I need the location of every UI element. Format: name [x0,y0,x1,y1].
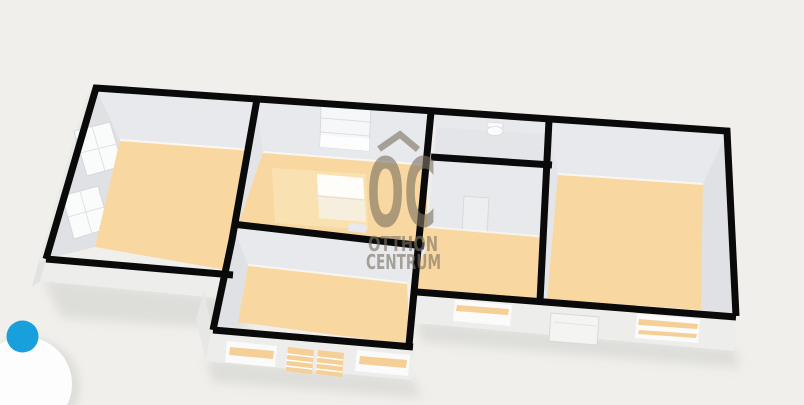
watermark-word2: CENTRUM [366,250,441,274]
south-window-rightroom [635,314,700,343]
room-right-floor [547,174,703,310]
hallway-door [462,196,489,234]
notification-dot[interactable] [7,321,39,353]
hallway-north-wall-face [428,158,551,237]
room-right [542,121,736,315]
floorplan-3d-canvas[interactable]: OC OTTHON CENTRUM [0,0,804,405]
north-wall-window [320,104,371,151]
toilet [487,122,503,136]
floorplan-viewer: OC OTTHON CENTRUM [0,0,804,405]
bed [317,174,366,222]
watermark: OC OTTHON CENTRUM [366,135,441,275]
south-entrance-door [549,313,599,345]
